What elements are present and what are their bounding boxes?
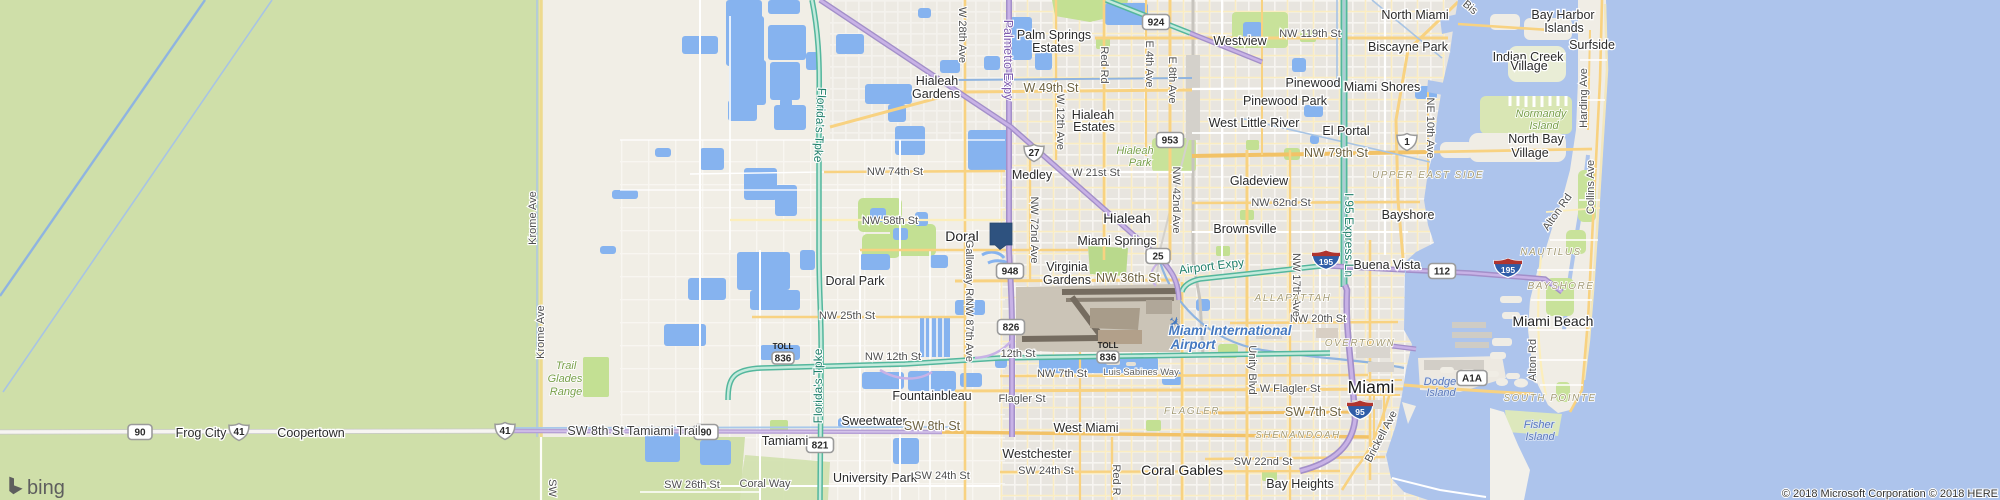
svg-text:Island: Island <box>1529 120 1559 132</box>
svg-text:SW 26th St: SW 26th St <box>664 479 720 491</box>
svg-text:Gladeview: Gladeview <box>1230 174 1289 188</box>
svg-text:NW 25th St: NW 25th St <box>819 310 875 322</box>
svg-text:SW 22nd St: SW 22nd St <box>1234 456 1293 468</box>
svg-text:90: 90 <box>134 428 146 439</box>
svg-text:NW 74th St: NW 74th St <box>867 166 923 178</box>
svg-text:North Bay: North Bay <box>1508 132 1564 146</box>
svg-text:Bay Heights: Bay Heights <box>1266 477 1333 491</box>
svg-text:I-95 Express Ln: I-95 Express Ln <box>1342 193 1356 277</box>
svg-text:Gardens: Gardens <box>1043 273 1091 287</box>
svg-text:West Little River: West Little River <box>1209 116 1300 130</box>
svg-text:Westview: Westview <box>1213 34 1267 48</box>
svg-text:836: 836 <box>775 354 792 365</box>
svg-text:NW 42nd Ave: NW 42nd Ave <box>1170 166 1182 233</box>
svg-text:University Park: University Park <box>833 471 918 485</box>
svg-text:836: 836 <box>1100 353 1117 364</box>
svg-text:195: 195 <box>1319 257 1333 267</box>
svg-text:Surfside: Surfside <box>1569 38 1615 52</box>
svg-text:Collins Ave: Collins Ave <box>1585 160 1597 214</box>
svg-text:BAYSHORE: BAYSHORE <box>1528 281 1595 292</box>
svg-text:NE 10th Ave: NE 10th Ave <box>1424 98 1436 159</box>
svg-text:Doral Park: Doral Park <box>825 274 885 288</box>
svg-text:North Miami: North Miami <box>1381 8 1448 22</box>
svg-text:SW: SW <box>546 479 558 497</box>
svg-text:41: 41 <box>499 426 511 437</box>
svg-text:Pinewood: Pinewood <box>1286 76 1341 90</box>
svg-text:Krome Ave: Krome Ave <box>535 305 547 359</box>
svg-text:Galloway Rd: Galloway Rd <box>963 240 975 302</box>
svg-text:Coral Way: Coral Way <box>740 478 791 490</box>
svg-text:El Portal: El Portal <box>1322 124 1369 138</box>
svg-text:Hialeah: Hialeah <box>1103 210 1150 226</box>
svg-text:Bayshore: Bayshore <box>1382 208 1435 222</box>
svg-text:Glades: Glades <box>548 373 583 385</box>
svg-text:Miami Shores: Miami Shores <box>1344 80 1420 94</box>
svg-text:Red Rd: Red Rd <box>1098 46 1110 83</box>
svg-text:Island: Island <box>1426 387 1456 399</box>
svg-text:Virginia: Virginia <box>1046 260 1088 274</box>
svg-text:Miami International: Miami International <box>1168 323 1291 338</box>
svg-text:Bay Harbor: Bay Harbor <box>1531 8 1594 22</box>
svg-text:West Miami: West Miami <box>1053 421 1118 435</box>
svg-text:NW 12th St: NW 12th St <box>865 351 921 363</box>
svg-text:W 28th Ave: W 28th Ave <box>956 7 968 63</box>
svg-text:Fisher: Fisher <box>1524 419 1556 431</box>
svg-text:W 49th St: W 49th St <box>1024 81 1079 95</box>
svg-text:Islands: Islands <box>1544 21 1584 35</box>
svg-text:Miami Springs: Miami Springs <box>1077 234 1156 248</box>
svg-text:E 8th Ave: E 8th Ave <box>1166 57 1178 104</box>
svg-text:W Flagler St: W Flagler St <box>1260 383 1321 395</box>
svg-text:1: 1 <box>1404 137 1410 148</box>
svg-text:27: 27 <box>1028 148 1040 159</box>
svg-text:Flagler St: Flagler St <box>998 393 1045 405</box>
svg-text:Hialeah: Hialeah <box>1116 145 1153 157</box>
svg-text:SHENANDOAH: SHENANDOAH <box>1255 430 1341 441</box>
svg-text:W 21st St: W 21st St <box>1072 167 1120 179</box>
svg-text:SOUTH POINTE: SOUTH POINTE <box>1503 393 1596 404</box>
svg-text:NW 79th St: NW 79th St <box>1304 146 1368 160</box>
svg-text:SW 24th St: SW 24th St <box>1018 465 1074 477</box>
svg-text:SW 24th St: SW 24th St <box>914 470 970 482</box>
svg-text:Range: Range <box>550 386 582 398</box>
svg-text:821: 821 <box>812 441 829 452</box>
svg-text:90: 90 <box>700 428 712 439</box>
svg-text:NW 87th Ave: NW 87th Ave <box>963 298 975 362</box>
svg-text:Palmetto Expy: Palmetto Expy <box>1001 20 1015 101</box>
svg-text:Village: Village <box>1511 146 1548 160</box>
svg-text:25: 25 <box>1152 252 1164 263</box>
svg-text:FLAGLER: FLAGLER <box>1164 406 1220 417</box>
svg-text:Krome Ave: Krome Ave <box>527 191 539 245</box>
svg-text:Westchester: Westchester <box>1002 447 1071 461</box>
svg-text:SW 8th St Tamiami Trail: SW 8th St Tamiami Trail <box>567 424 700 438</box>
svg-text:953: 953 <box>1162 136 1179 147</box>
svg-text:Island: Island <box>1525 431 1555 443</box>
svg-text:NW 72nd Ave: NW 72nd Ave <box>1028 196 1040 263</box>
svg-text:Miami: Miami <box>1348 377 1395 397</box>
svg-text:Florida's Tpke: Florida's Tpke <box>811 348 825 423</box>
svg-text:SW 8th St: SW 8th St <box>904 419 961 433</box>
svg-text:OVERTOWN: OVERTOWN <box>1325 338 1396 349</box>
svg-text:A1A: A1A <box>1462 374 1482 385</box>
svg-text:Frog City: Frog City <box>176 426 227 440</box>
svg-text:Brownsville: Brownsville <box>1213 222 1276 236</box>
svg-text:Luis Sabines Way: Luis Sabines Way <box>1103 367 1179 378</box>
svg-text:Park: Park <box>1129 157 1152 169</box>
svg-text:924: 924 <box>1148 18 1165 29</box>
svg-text:TOLL: TOLL <box>773 342 794 351</box>
svg-text:Fountainbleau: Fountainbleau <box>892 389 971 403</box>
svg-text:Trail: Trail <box>556 360 577 372</box>
svg-text:TOLL: TOLL <box>1098 341 1119 350</box>
svg-text:Estates: Estates <box>1032 41 1074 55</box>
svg-text:Pinewood Park: Pinewood Park <box>1243 94 1328 108</box>
svg-text:Unity Blvd: Unity Blvd <box>1246 345 1258 395</box>
svg-text:Miami Beach: Miami Beach <box>1513 313 1594 329</box>
svg-text:NW 7th St: NW 7th St <box>1037 368 1087 380</box>
svg-text:NW 62nd St: NW 62nd St <box>1251 197 1310 209</box>
svg-text:826: 826 <box>1003 323 1020 334</box>
svg-text:NW 17th Ave: NW 17th Ave <box>1290 253 1302 317</box>
svg-text:NW 119th St: NW 119th St <box>1279 28 1341 40</box>
svg-text:bing: bing <box>27 477 65 499</box>
svg-text:© 2018 Microsoft Corporation ©: © 2018 Microsoft Corporation © 2018 HERE <box>1782 488 1998 500</box>
svg-text:Red R: Red R <box>1110 464 1122 495</box>
svg-text:UPPER EAST SIDE: UPPER EAST SIDE <box>1372 170 1484 181</box>
svg-text:NW 36th St: NW 36th St <box>1096 271 1160 285</box>
svg-text:Biscayne Park: Biscayne Park <box>1368 40 1449 54</box>
svg-text:12th St: 12th St <box>1001 348 1036 360</box>
svg-text:Hialeah: Hialeah <box>916 74 958 88</box>
svg-text:Coopertown: Coopertown <box>277 426 344 440</box>
svg-text:112: 112 <box>1434 267 1451 278</box>
svg-text:Gardens: Gardens <box>912 87 960 101</box>
svg-text:Medley: Medley <box>1012 168 1053 182</box>
svg-text:Coral Gables: Coral Gables <box>1141 462 1223 478</box>
svg-text:Buena Vista: Buena Vista <box>1353 258 1420 272</box>
svg-text:95: 95 <box>1355 407 1365 417</box>
svg-text:948: 948 <box>1002 267 1019 278</box>
svg-text:Estates: Estates <box>1073 120 1115 134</box>
svg-text:ALLAPATTAH: ALLAPATTAH <box>1254 293 1332 304</box>
svg-text:Normandy: Normandy <box>1516 108 1568 120</box>
svg-text:41: 41 <box>233 427 245 438</box>
svg-text:NW 58th St: NW 58th St <box>862 215 918 227</box>
svg-text:Sweetwater: Sweetwater <box>841 414 906 428</box>
svg-text:195: 195 <box>1501 265 1515 275</box>
svg-text:Harding Ave: Harding Ave <box>1578 68 1590 128</box>
svg-text:Village: Village <box>1510 59 1547 73</box>
svg-text:W 12th Ave: W 12th Ave <box>1054 94 1066 150</box>
svg-text:Tamiami: Tamiami <box>762 434 809 448</box>
svg-text:SW 7th St: SW 7th St <box>1285 405 1342 419</box>
svg-text:E 4th Ave: E 4th Ave <box>1143 41 1155 88</box>
svg-text:Alton Rd: Alton Rd <box>1527 339 1539 381</box>
svg-text:Airport: Airport <box>1170 337 1217 352</box>
svg-text:Palm Springs: Palm Springs <box>1017 28 1091 42</box>
svg-text:NAUTILUS: NAUTILUS <box>1520 247 1581 258</box>
